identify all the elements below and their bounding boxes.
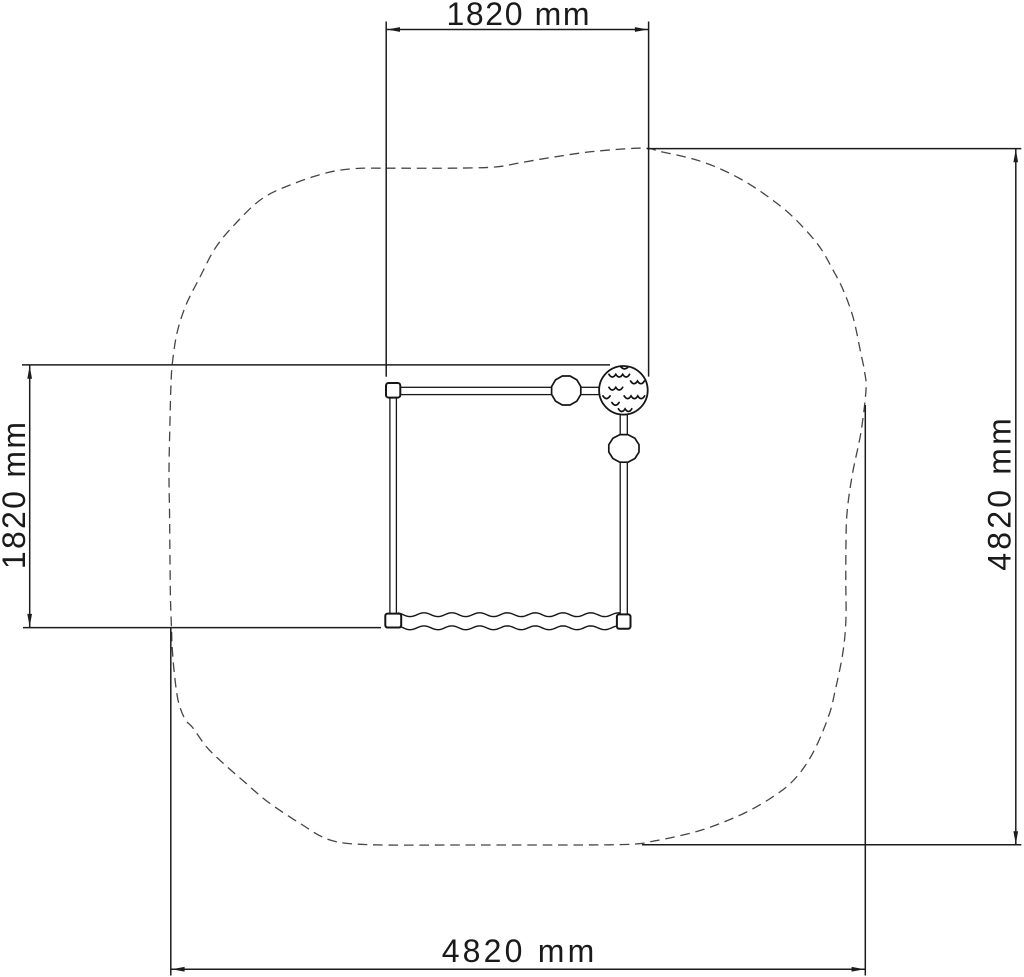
svg-text:4820 mm: 4820 mm — [982, 415, 1018, 571]
svg-text:1820 mm: 1820 mm — [0, 420, 32, 570]
svg-text:1820 mm: 1820 mm — [447, 0, 592, 32]
svg-text:4820 mm: 4820 mm — [442, 933, 598, 969]
